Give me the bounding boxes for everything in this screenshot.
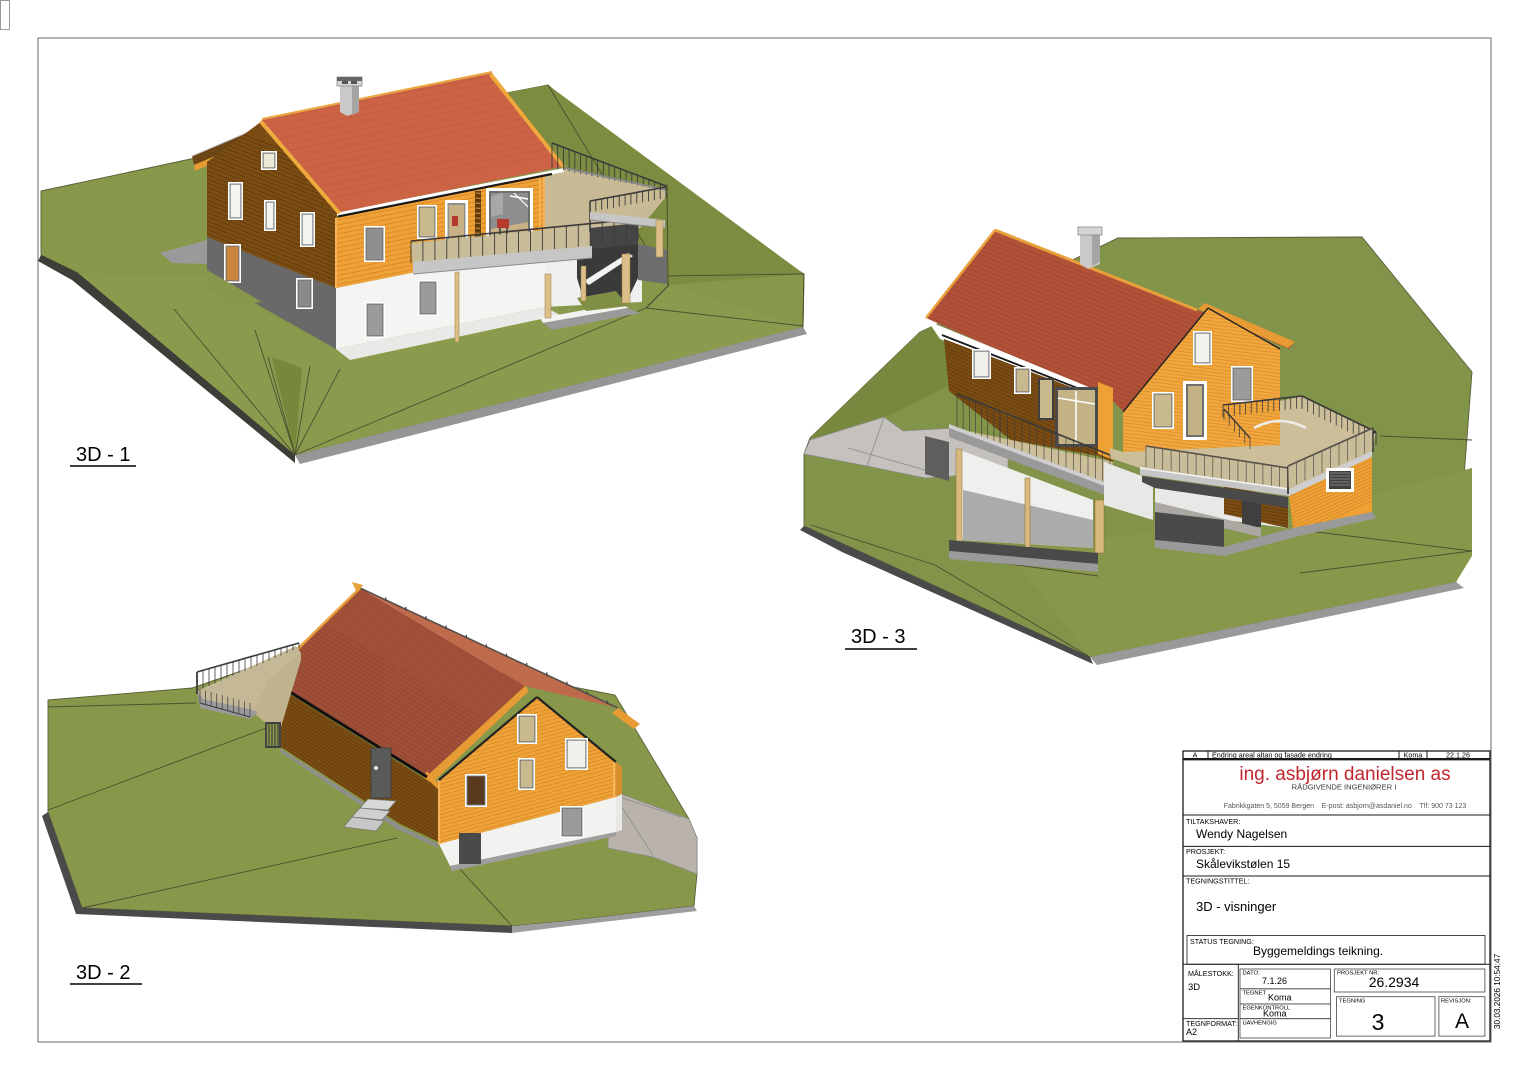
svg-text:Byggemeldings teikning.: Byggemeldings teikning. [1253, 944, 1383, 958]
svg-text:TILTAKSHAVER:: TILTAKSHAVER: [1186, 817, 1240, 826]
svg-text:Wendy Nagelsen: Wendy Nagelsen [1196, 827, 1287, 841]
svg-text:3D: 3D [1188, 982, 1200, 993]
svg-text:UAVHENGIG: UAVHENGIG [1243, 1021, 1278, 1027]
svg-text:Koma: Koma [1404, 750, 1423, 759]
svg-text:7.1.26: 7.1.26 [1262, 976, 1287, 986]
svg-text:22.1.26: 22.1.26 [1446, 750, 1470, 759]
svg-text:MÅLESTOKK:: MÅLESTOKK: [1188, 969, 1234, 978]
svg-text:DATO:: DATO: [1243, 971, 1261, 977]
svg-text:REVISJON:: REVISJON: [1441, 999, 1472, 1005]
svg-text:Endring areal altan og fasade: Endring areal altan og fasade endring [1212, 750, 1332, 759]
svg-text:Fabrikkgaten 5, 5059 Bergen: Fabrikkgaten 5, 5059 Bergen E-post: asbj… [1224, 803, 1467, 810]
svg-text:TEGNING: TEGNING [1339, 999, 1366, 1005]
svg-text:30.03.2026 10:54:47: 30.03.2026 10:54:47 [1493, 953, 1502, 1029]
svg-text:PROSJEKT:: PROSJEKT: [1186, 847, 1225, 856]
svg-text:3D - visninger: 3D - visninger [1196, 899, 1277, 914]
svg-text:3: 3 [1372, 1009, 1385, 1035]
svg-text:Koma: Koma [1263, 1009, 1287, 1019]
svg-text:Koma: Koma [1268, 993, 1292, 1003]
svg-text:RÅDGIVENDE INGENIØRER I: RÅDGIVENDE INGENIØRER I [1292, 783, 1397, 792]
svg-text:26.2934: 26.2934 [1369, 974, 1420, 990]
svg-text:3D - 2: 3D - 2 [76, 962, 130, 984]
svg-text:TEGNINGSTITTEL:: TEGNINGSTITTEL: [1186, 877, 1250, 886]
svg-text:3D - 1: 3D - 1 [76, 444, 130, 466]
svg-text:A2: A2 [1186, 1027, 1197, 1037]
svg-text:A: A [1455, 1010, 1469, 1033]
svg-text:TEGNET: TEGNET [1243, 991, 1267, 997]
svg-text:Skålevikstølen 15: Skålevikstølen 15 [1196, 857, 1290, 871]
svg-text:3D - 3: 3D - 3 [851, 626, 905, 648]
svg-text:STATUS TEGNING:: STATUS TEGNING: [1190, 937, 1254, 946]
svg-text:A: A [1193, 750, 1198, 759]
